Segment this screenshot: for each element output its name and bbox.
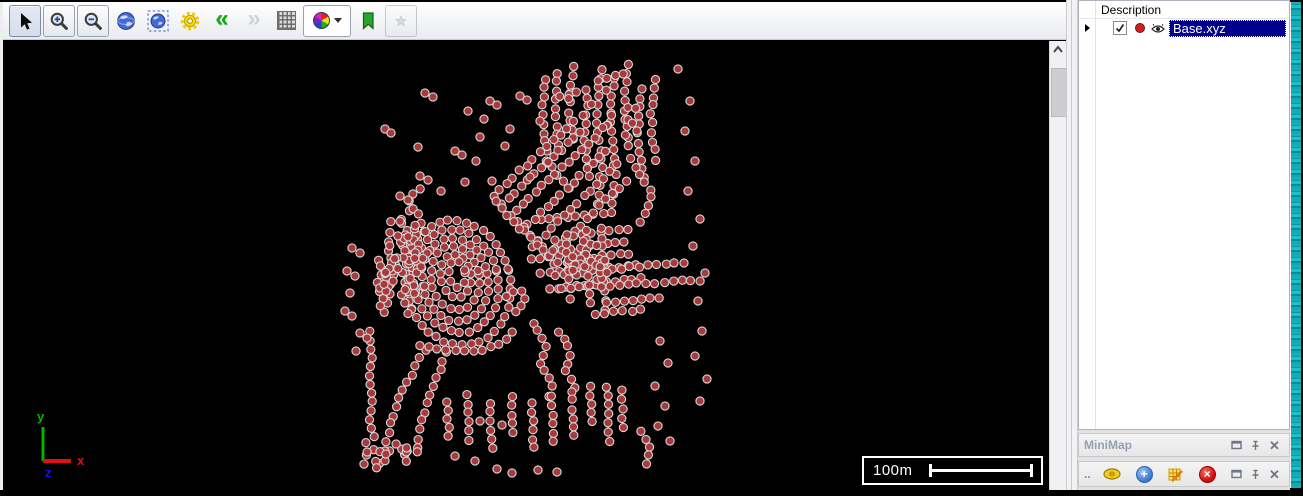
data-point (649, 101, 657, 109)
data-point (536, 269, 544, 277)
data-point (545, 374, 553, 382)
data-point (427, 275, 435, 283)
data-point (391, 255, 399, 263)
data-point (603, 74, 611, 82)
data-point (552, 77, 560, 85)
data-point (609, 137, 617, 145)
visibility-checkbox[interactable] (1113, 21, 1127, 35)
dropdown-caret-icon (334, 18, 342, 23)
data-point (607, 208, 615, 216)
data-point (416, 342, 424, 350)
data-point (616, 281, 624, 289)
data-point (386, 228, 394, 236)
data-point (363, 334, 371, 342)
data-point (570, 62, 578, 70)
data-point (356, 249, 364, 257)
data-point (647, 129, 655, 137)
data-point (410, 289, 418, 297)
data-point (453, 283, 461, 291)
data-point (615, 226, 623, 234)
data-point (348, 244, 356, 252)
data-point (392, 440, 400, 448)
data-point (542, 342, 550, 350)
data-point (368, 397, 376, 405)
data-point (465, 328, 473, 336)
data-point (593, 110, 601, 118)
data-point (432, 292, 440, 300)
data-point (425, 298, 433, 306)
data-point (429, 382, 437, 390)
data-point (437, 311, 445, 319)
data-point (474, 288, 482, 296)
tools-restore-button[interactable] (1227, 469, 1246, 479)
data-point (493, 101, 501, 109)
data-point (437, 187, 445, 195)
data-point (445, 267, 453, 275)
data-point (561, 211, 569, 219)
data-point (569, 423, 577, 431)
data-point (436, 218, 444, 226)
data-point (495, 340, 503, 348)
data-point (458, 151, 466, 159)
data-point (563, 342, 571, 350)
data-point (508, 469, 516, 477)
data-point (649, 118, 657, 126)
delete-circle-icon[interactable]: × (1199, 466, 1216, 483)
data-point (575, 283, 583, 291)
data-point (628, 119, 636, 127)
data-point (494, 285, 502, 293)
data-point (536, 148, 544, 156)
data-point (470, 296, 478, 304)
data-point (608, 189, 616, 197)
data-point (463, 303, 471, 311)
axis-y-label: y (37, 409, 44, 424)
data-point (597, 224, 605, 232)
data-point (508, 411, 516, 419)
data-point (564, 138, 572, 146)
data-point (382, 450, 390, 458)
palette-pie-icon (313, 12, 330, 29)
data-point (519, 200, 527, 208)
data-point (528, 399, 536, 407)
data-point (510, 218, 518, 226)
data-point (429, 257, 437, 265)
data-point (597, 283, 605, 291)
application-window: «» y x z 100m Description (0, 0, 1303, 496)
data-point (365, 372, 373, 380)
data-point (432, 374, 440, 382)
data-point (447, 327, 455, 335)
data-point (606, 282, 614, 290)
data-point (581, 263, 589, 271)
data-point (480, 115, 488, 123)
data-point (394, 232, 402, 240)
data-point (602, 298, 610, 306)
data-point (655, 294, 663, 302)
data-point (497, 320, 505, 328)
data-point (465, 229, 473, 237)
data-point (528, 408, 536, 416)
data-point (670, 259, 678, 267)
data-point (484, 248, 492, 256)
gear-icon (179, 10, 201, 32)
minimap-pin-button[interactable] (1246, 440, 1265, 451)
data-point (666, 437, 674, 445)
data-point (595, 201, 603, 209)
data-point (542, 76, 550, 84)
data-point (698, 327, 706, 335)
select-cursor-button[interactable] (9, 5, 41, 37)
data-point (553, 468, 561, 476)
data-point (438, 226, 446, 234)
data-point (440, 243, 448, 251)
data-point (569, 266, 577, 274)
data-point (618, 307, 626, 315)
data-point (582, 86, 590, 94)
data-point (442, 346, 450, 354)
data-point (428, 267, 436, 275)
data-point (599, 123, 607, 131)
data-point (463, 287, 471, 295)
layer-name[interactable]: Base.xyz (1169, 20, 1286, 37)
data-point (408, 371, 416, 379)
data-point (419, 254, 427, 262)
grid-header-row: Description (1079, 1, 1289, 19)
data-point (647, 193, 655, 201)
data-point (366, 380, 374, 388)
data-point (611, 238, 619, 246)
data-point (440, 235, 448, 243)
data-point (386, 242, 394, 250)
data-point (624, 142, 632, 150)
data-point (549, 437, 557, 445)
data-point (618, 414, 626, 422)
data-point (563, 231, 571, 239)
layer-row[interactable]: Base.xyz (1079, 19, 1289, 37)
data-point (638, 295, 646, 303)
data-point (544, 203, 552, 211)
data-point (550, 136, 558, 144)
data-point (411, 362, 419, 370)
edit-notes-icon[interactable] (1168, 467, 1184, 482)
data-point (421, 228, 429, 236)
data-point (591, 134, 599, 142)
map-canvas[interactable]: y x z 100m (3, 41, 1049, 490)
data-point (416, 425, 424, 433)
scale-bar-line (929, 469, 1033, 472)
data-point (629, 307, 637, 315)
data-point (610, 82, 618, 90)
data-point (650, 280, 658, 288)
data-point (348, 312, 356, 320)
data-point (439, 323, 447, 331)
data-point (515, 166, 523, 174)
data-point (551, 113, 559, 121)
data-point (534, 466, 542, 474)
data-point (567, 284, 575, 292)
data-point (425, 343, 433, 351)
data-point (624, 250, 632, 258)
data-point (554, 146, 562, 154)
data-point (623, 78, 631, 86)
data-point (445, 316, 453, 324)
data-point (448, 234, 456, 242)
data-point (476, 133, 484, 141)
minimap-close-button[interactable]: ✕ (1265, 439, 1284, 452)
data-point (370, 433, 378, 441)
data-point (463, 391, 471, 399)
tools-pin-button[interactable] (1246, 469, 1265, 480)
data-point (431, 319, 439, 327)
zoom-out-button[interactable] (77, 5, 109, 37)
data-point (415, 353, 423, 361)
data-point (368, 354, 376, 362)
data-point (585, 281, 593, 289)
data-point (591, 310, 599, 318)
data-point (489, 257, 497, 265)
data-point (529, 426, 537, 434)
data-point (464, 107, 472, 115)
data-point (602, 86, 610, 94)
data-point (565, 109, 573, 117)
data-point (484, 278, 492, 286)
data-point (418, 305, 426, 313)
description-column-header: Description (1101, 3, 1161, 17)
data-point (585, 140, 593, 148)
palette-dropdown[interactable] (303, 5, 351, 37)
data-point (623, 177, 631, 185)
star-icon (395, 15, 407, 27)
cursor-icon (15, 11, 35, 31)
data-point (586, 299, 594, 307)
data-point (433, 249, 441, 257)
data-point (678, 276, 686, 284)
data-point (582, 226, 590, 234)
row-selector[interactable] (1079, 24, 1095, 32)
tools-title: .. (1084, 467, 1091, 481)
data-point (539, 351, 547, 359)
data-point (593, 180, 601, 188)
data-point (363, 448, 371, 456)
data-point (486, 232, 494, 240)
data-point (566, 352, 574, 360)
data-point (619, 423, 627, 431)
data-point (498, 204, 506, 212)
add-circle-icon[interactable]: + (1136, 466, 1153, 483)
zoom-in-button[interactable] (43, 5, 75, 37)
data-point (487, 343, 495, 351)
data-point (512, 308, 520, 316)
axis-x-label: x (77, 453, 84, 468)
data-point (613, 160, 621, 168)
data-point (621, 87, 629, 95)
data-point (417, 263, 425, 271)
data-point (432, 332, 440, 340)
data-point (449, 242, 457, 250)
vertical-scrollbar[interactable] (1049, 41, 1066, 490)
data-point (480, 226, 488, 234)
data-point (464, 408, 472, 416)
data-point (583, 164, 591, 172)
data-point (593, 241, 601, 249)
data-point (447, 259, 455, 267)
data-point (646, 294, 654, 302)
data-point (651, 382, 659, 390)
data-point (632, 104, 640, 112)
data-point (455, 317, 463, 325)
data-point (458, 245, 466, 253)
data-point (367, 424, 375, 432)
data-point (401, 286, 409, 294)
data-point (555, 328, 563, 336)
data-point (578, 146, 586, 154)
data-point (620, 238, 628, 246)
data-point (564, 184, 572, 192)
scroll-up-button[interactable] (1050, 41, 1066, 57)
tools-close-button[interactable]: ✕ (1265, 468, 1284, 481)
data-point (637, 156, 645, 164)
data-point (403, 378, 411, 386)
main-toolbar: «» (3, 2, 1066, 40)
data-point (503, 211, 511, 219)
minimap-restore-button[interactable] (1227, 440, 1246, 450)
data-point (476, 279, 484, 287)
data-point (634, 139, 642, 147)
data-point (540, 366, 548, 374)
data-point (604, 392, 612, 400)
data-point (549, 429, 557, 437)
data-point (367, 407, 375, 415)
bookmark-button[interactable] (353, 6, 383, 36)
eye-icon[interactable] (1151, 23, 1165, 34)
data-point (650, 84, 658, 92)
data-point (503, 180, 511, 188)
scroll-thumb[interactable] (1051, 68, 1067, 117)
data-point (504, 265, 512, 273)
data-point (453, 217, 461, 225)
eye-yellow-icon[interactable] (1103, 468, 1121, 480)
data-point (424, 176, 432, 184)
data-point (625, 280, 633, 288)
data-point (684, 187, 692, 195)
data-point (443, 398, 451, 406)
data-point (455, 305, 463, 313)
data-point (607, 111, 615, 119)
data-point (570, 431, 578, 439)
data-point (651, 75, 659, 83)
data-point (387, 218, 395, 226)
data-point (565, 158, 573, 166)
data-point (458, 236, 466, 244)
data-point (477, 305, 485, 313)
data-point (414, 210, 422, 218)
panel-splitter[interactable] (1066, 0, 1078, 490)
data-point (486, 400, 494, 408)
data-point (463, 316, 471, 324)
previous-view-button[interactable]: « (207, 6, 237, 36)
data-point (493, 465, 501, 473)
zoom-out-icon (83, 11, 103, 31)
data-point (420, 282, 428, 290)
data-point (461, 266, 469, 274)
data-point (404, 309, 412, 317)
data-point (533, 326, 541, 334)
data-point (394, 264, 402, 272)
data-point (627, 154, 635, 162)
data-point (654, 422, 662, 430)
data-point (431, 240, 439, 248)
data-point (540, 93, 548, 101)
data-point (579, 111, 587, 119)
axis-gizmo: y x z (17, 409, 97, 485)
data-point (421, 290, 429, 298)
data-point (651, 145, 659, 153)
data-point (507, 276, 515, 284)
data-point (585, 172, 593, 180)
data-point (595, 92, 603, 100)
layers-grid: Description (1078, 0, 1290, 430)
data-point (565, 95, 573, 103)
data-point (540, 83, 548, 91)
right-panel: Description (1078, 0, 1290, 490)
data-point (619, 405, 627, 413)
data-point (455, 258, 463, 266)
data-point (551, 271, 559, 279)
data-point (455, 328, 463, 336)
globe-view-button[interactable] (111, 6, 141, 36)
data-point (638, 85, 646, 93)
data-point (605, 410, 613, 418)
data-point (587, 382, 595, 390)
data-point (376, 302, 384, 310)
data-point (442, 286, 450, 294)
data-point (545, 176, 553, 184)
data-point (492, 197, 500, 205)
globe-extent-button[interactable] (143, 6, 173, 36)
data-point (670, 277, 678, 285)
data-point (661, 402, 669, 410)
axis-z-label: z (45, 465, 52, 480)
data-point (423, 312, 431, 320)
data-point (635, 112, 643, 120)
grid-button[interactable] (271, 6, 301, 36)
data-point (640, 178, 648, 186)
settings-button[interactable] (175, 6, 205, 36)
data-point (621, 131, 629, 139)
data-point (402, 457, 410, 465)
data-point (696, 215, 704, 223)
data-point (496, 248, 504, 256)
data-point (586, 392, 594, 400)
data-point (703, 375, 711, 383)
data-point (484, 287, 492, 295)
data-point (395, 394, 403, 402)
data-point (604, 419, 612, 427)
data-point (567, 375, 575, 383)
data-point (423, 399, 431, 407)
data-point (569, 72, 577, 80)
data-point (508, 393, 516, 401)
data-point (572, 88, 580, 96)
data-point (645, 443, 653, 451)
data-point (610, 145, 618, 153)
data-point (414, 143, 422, 151)
data-point (433, 345, 441, 353)
data-point (398, 386, 406, 394)
data-point (644, 202, 652, 210)
axis-lines (17, 409, 97, 485)
